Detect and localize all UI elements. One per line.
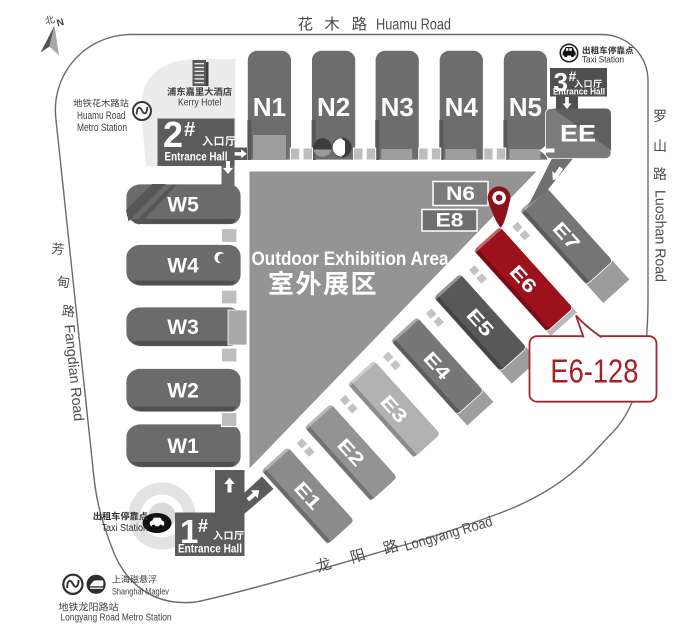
svg-text:Entrance Hall: Entrance Hall (178, 544, 242, 556)
svg-text:N1: N1 (253, 92, 286, 122)
svg-text:Entrance Hall: Entrance Hall (553, 87, 605, 97)
svg-text:Luoshan Road: Luoshan Road (652, 190, 668, 282)
svg-text:W5: W5 (167, 194, 199, 217)
svg-text:E6-128: E6-128 (550, 354, 638, 391)
svg-text:N3: N3 (381, 92, 414, 122)
svg-text:W3: W3 (167, 316, 199, 339)
svg-text:Kerry Hotel: Kerry Hotel (178, 97, 222, 109)
svg-text:W1: W1 (167, 435, 199, 458)
svg-text:N6: N6 (446, 184, 475, 205)
svg-text:W4: W4 (167, 255, 199, 278)
svg-text:Entrance Hall: Entrance Hall (165, 150, 228, 164)
svg-text:Outdoor Exhibition Area: Outdoor Exhibition Area (252, 248, 449, 270)
svg-text:Longyang Road Metro Station: Longyang Road Metro Station (61, 613, 172, 624)
svg-text:Taxi Station: Taxi Station (582, 55, 624, 66)
svg-text:#: # (198, 516, 208, 536)
svg-text:Taxi Station: Taxi Station (102, 523, 149, 534)
svg-text:Huamu Road: Huamu Road (77, 110, 126, 122)
svg-text:N2: N2 (317, 92, 350, 122)
svg-text:N4: N4 (445, 92, 479, 122)
svg-text:N5: N5 (509, 92, 542, 122)
svg-text:Huamu Road: Huamu Road (376, 17, 451, 34)
svg-text:#: # (569, 68, 577, 84)
svg-text:W2: W2 (167, 380, 199, 403)
svg-text:EE: EE (560, 121, 596, 148)
svg-text:#: # (184, 119, 195, 141)
svg-text:Metro Station: Metro Station (77, 122, 127, 134)
svg-text:Shanghai Maglev: Shanghai Maglev (112, 587, 169, 598)
svg-text:E8: E8 (436, 211, 464, 232)
